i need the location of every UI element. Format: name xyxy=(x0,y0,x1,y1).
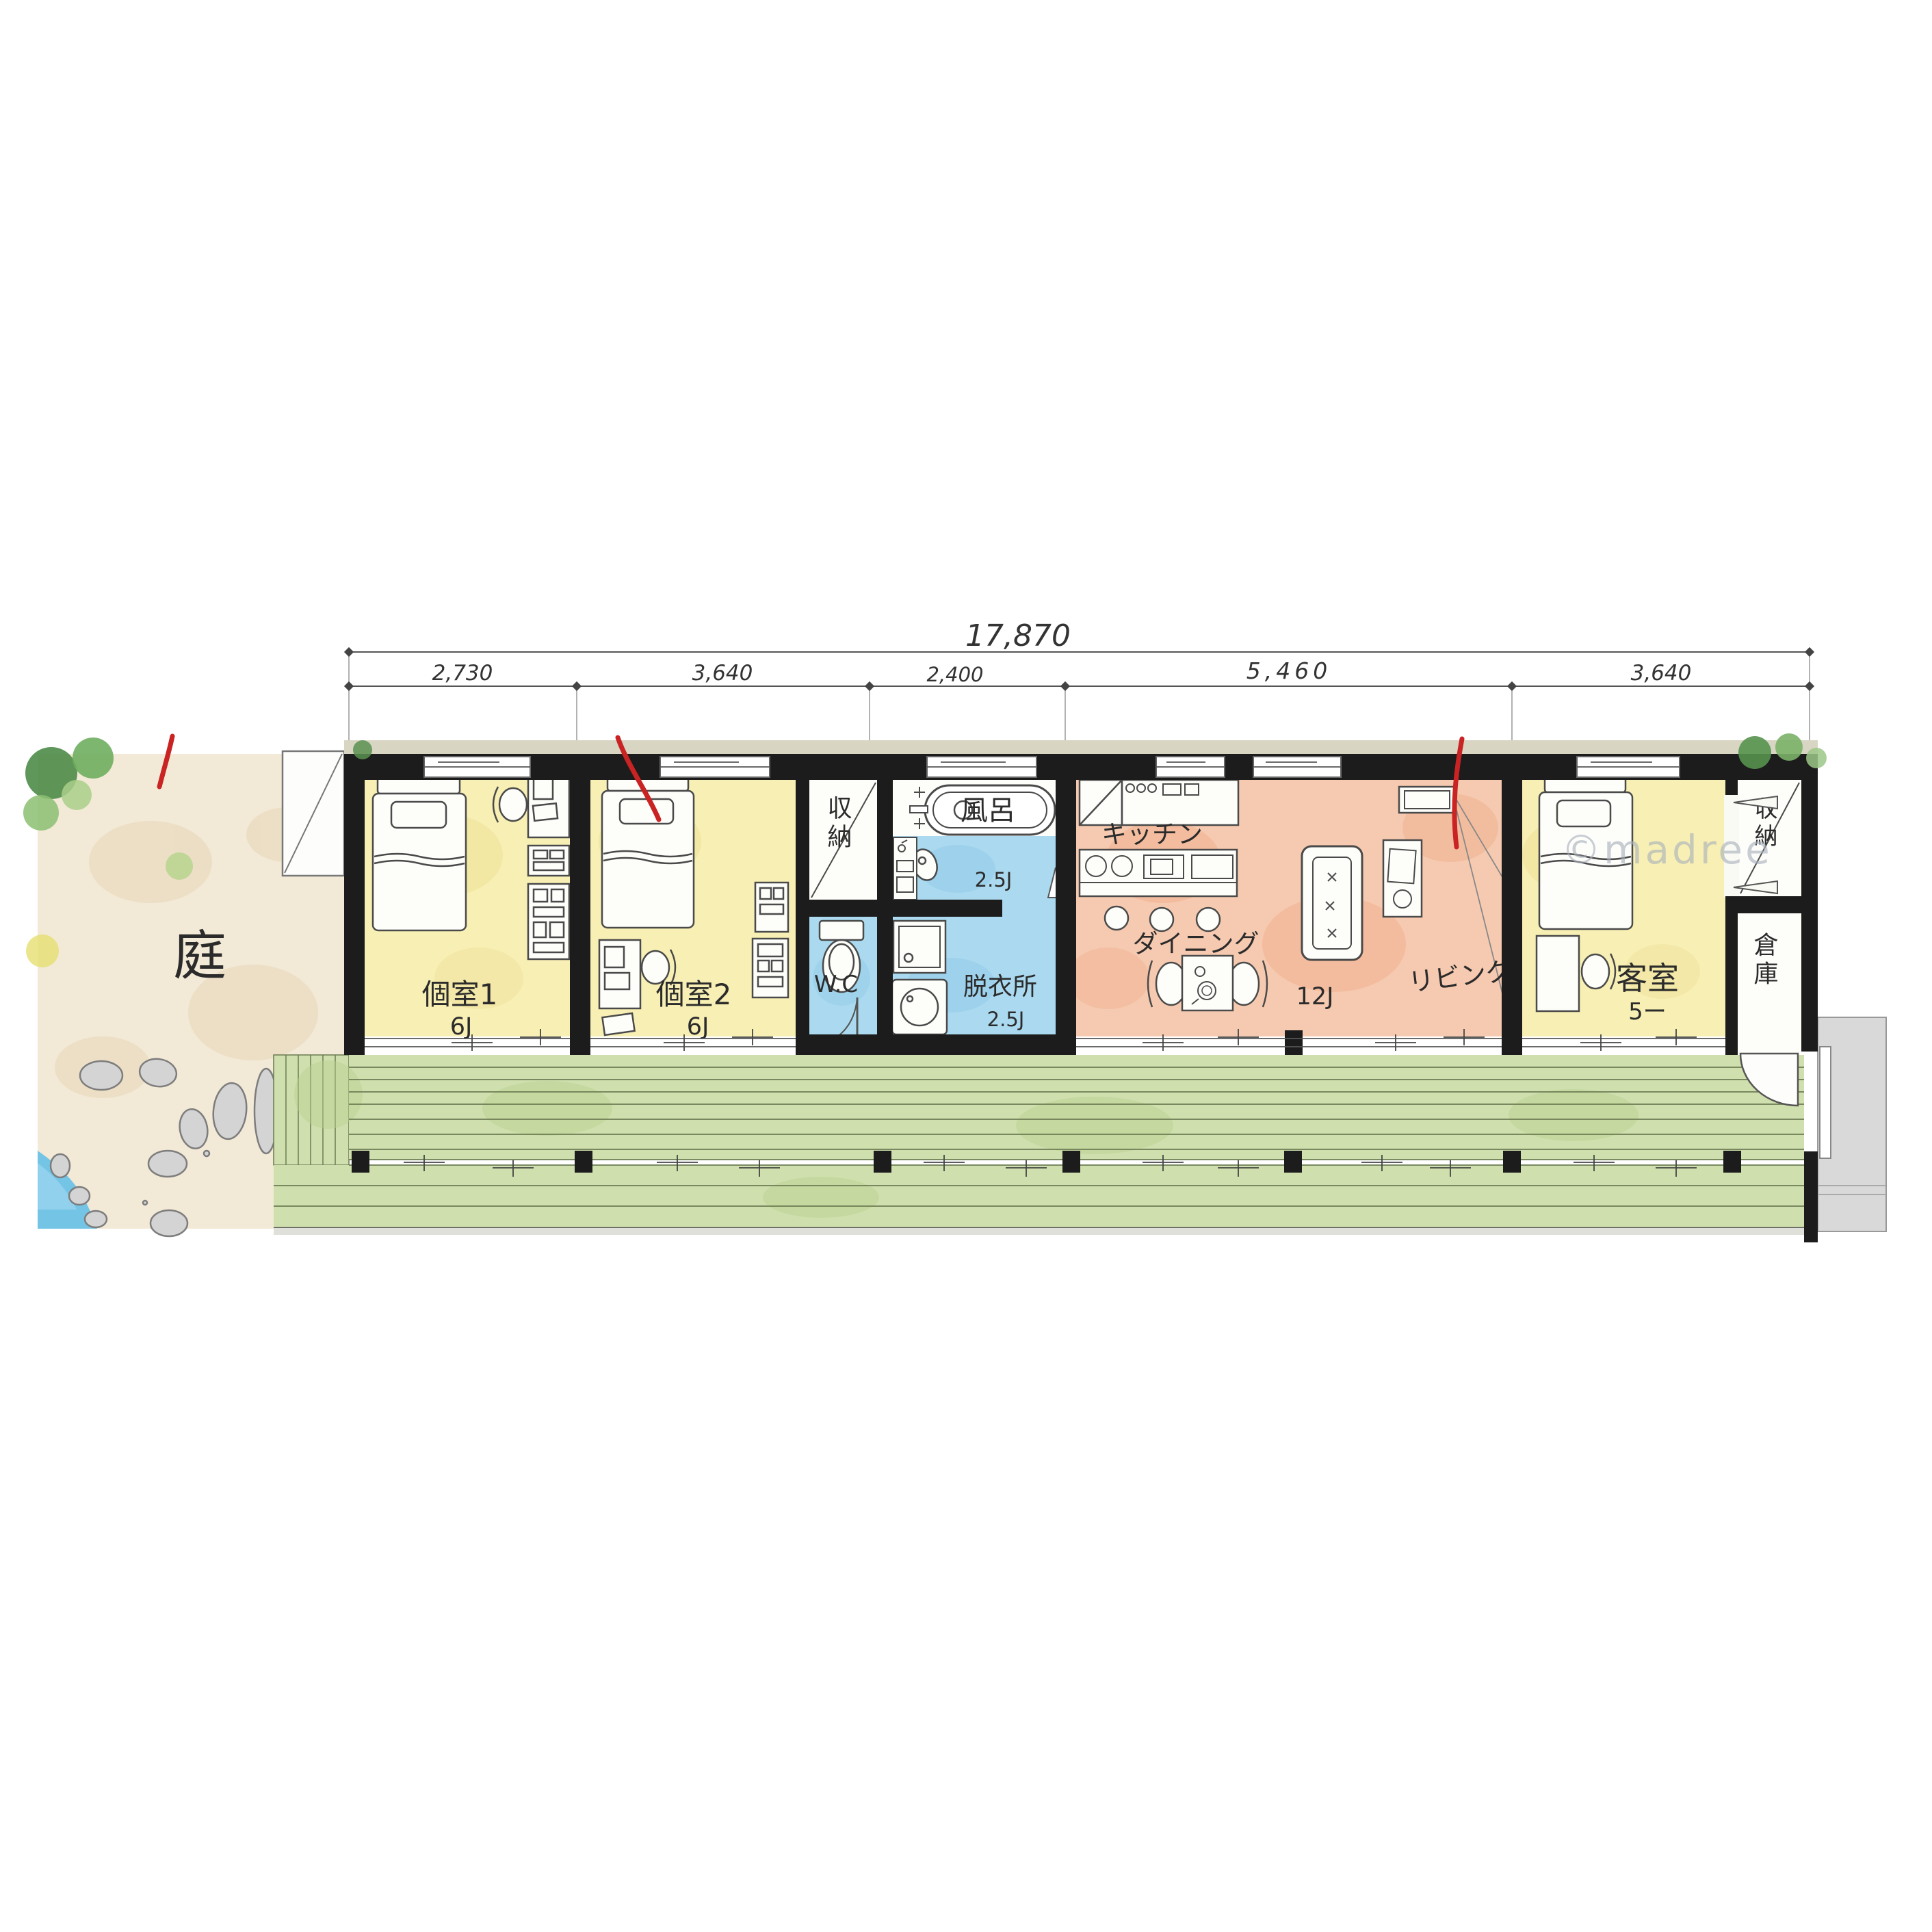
dim-seg-4: 5,460 xyxy=(1246,657,1331,684)
bedroom2-label: 個室2 xyxy=(656,978,732,1011)
stool-icon xyxy=(1105,906,1128,930)
dim-seg-5: 3,640 xyxy=(1631,661,1692,686)
dining-set xyxy=(1148,956,1267,1010)
dressing-size: 2.5J xyxy=(987,1008,1025,1031)
desk-icon xyxy=(1537,936,1579,1011)
dim-total: 17,870 xyxy=(965,618,1071,653)
dimension-lines-top xyxy=(344,647,1814,740)
sink-bowl-icon xyxy=(1086,856,1106,876)
chair-icon xyxy=(499,788,527,821)
bedroom1-label: 個室1 xyxy=(422,978,498,1011)
bed-pillow-icon xyxy=(620,799,673,824)
bath-size: 2.5J xyxy=(975,868,1013,891)
bath-label: 風呂 xyxy=(961,795,1015,826)
floor-plan-canvas: 17,870 2,730 3,640 2,400 5,460 3,640 3,6… xyxy=(0,0,1932,1932)
kitchen-label: キッチン xyxy=(1101,820,1203,849)
dim-seg-2: 3,640 xyxy=(692,661,753,686)
storage-label: 倉庫 xyxy=(1750,932,1778,989)
dressing-label: 脱衣所 xyxy=(963,973,1037,1001)
dim-seg-1: 2,730 xyxy=(432,661,493,686)
toilet-label: W.C xyxy=(814,971,858,998)
closet-center-label: 収納 xyxy=(824,795,852,852)
bath-door-gap-floor xyxy=(1002,900,1056,917)
chair-icon xyxy=(1582,954,1609,989)
guest-label: 客室 xyxy=(1616,960,1679,997)
guest-size: 5ー xyxy=(1628,998,1667,1026)
floor-plan-drawing: 17,870 2,730 3,640 2,400 5,460 3,640 3,6… xyxy=(0,0,1932,1932)
bath-vanity-icon xyxy=(893,837,917,900)
storage-door-leaf-open xyxy=(1820,1047,1831,1158)
wood-deck xyxy=(274,1055,1804,1235)
dimension-ticks xyxy=(344,647,1814,691)
garden-label: 庭 xyxy=(173,926,226,987)
bedroom2-size: 6J xyxy=(687,1013,709,1041)
stool-icon xyxy=(1150,908,1173,931)
dim-seg-3: 2,400 xyxy=(926,663,983,686)
eave-band xyxy=(344,740,1818,754)
shutter-panel xyxy=(283,751,344,876)
stone-path-east xyxy=(1818,1017,1886,1231)
bed-pillow-icon xyxy=(1557,800,1610,826)
sink-bowl-icon xyxy=(1112,856,1132,876)
bedroom1-size: 6J xyxy=(450,1013,473,1041)
toilet-tank-icon xyxy=(820,921,863,940)
watermark: ©madree xyxy=(1561,826,1773,873)
bed-pillow-icon xyxy=(391,802,446,828)
stool-icon xyxy=(1197,908,1220,931)
living-size: 12J xyxy=(1296,983,1334,1010)
dining-label: ダイニング xyxy=(1133,929,1259,958)
